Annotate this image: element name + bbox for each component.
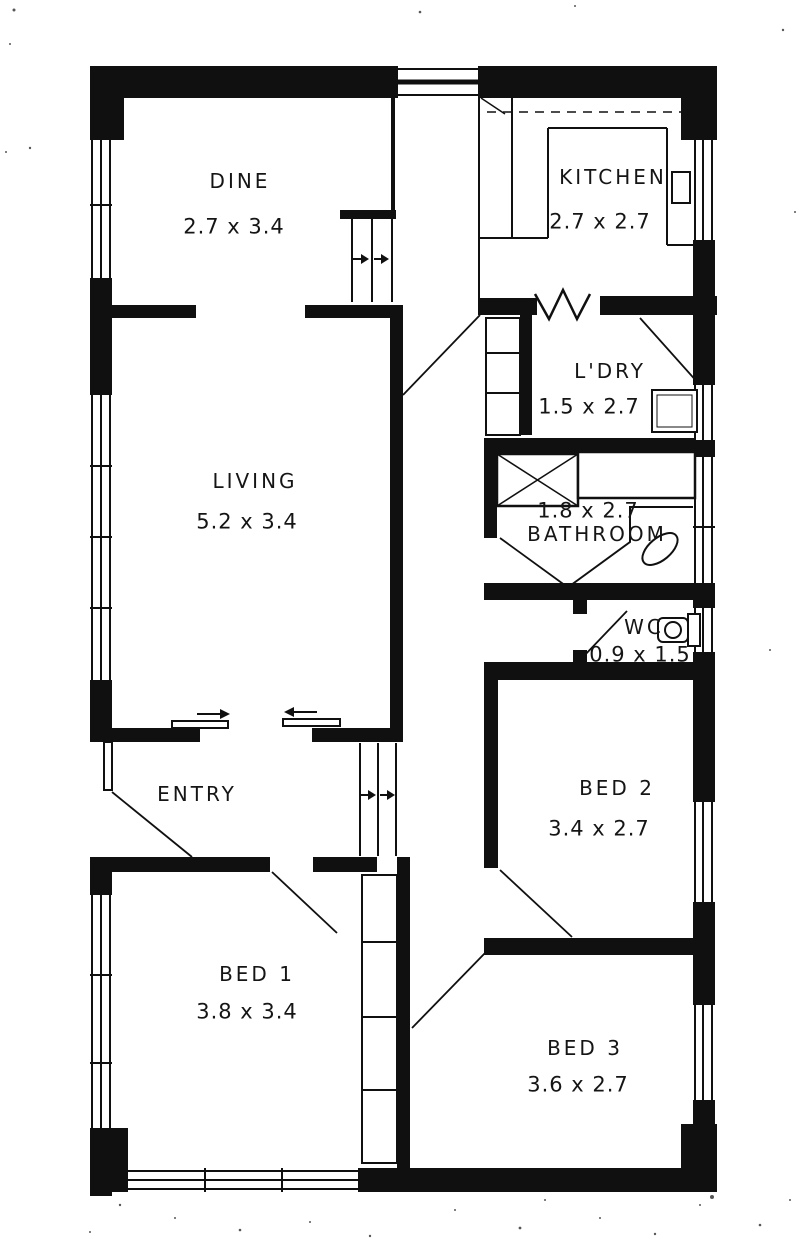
room-label-bed3: BED 3 [547, 1038, 623, 1058]
room-dims-dine: 2.7 x 3.4 [183, 217, 285, 238]
kitchen-sink [672, 172, 690, 203]
hall-door-swing [403, 315, 480, 395]
room-label-living: LIVING [212, 471, 297, 491]
wardrobe [362, 875, 397, 1163]
slider-arrow-icon [368, 790, 376, 800]
room-label-bathroom: BATHROOM [527, 524, 667, 544]
toilet [658, 614, 700, 646]
laundry-trough [652, 390, 697, 432]
room-dims-wc: 0.9 x 1.5 [589, 645, 691, 666]
living-sliding-doors [172, 707, 340, 728]
room-label-bed2: BED 2 [579, 778, 655, 798]
room-label-entry: ENTRY [157, 784, 237, 804]
floor-plan: DINE 2.7 x 3.4 KITCHEN 2.7 x 2.7 L'DRY 1… [0, 0, 800, 1243]
room-label-kitchen: KITCHEN [559, 167, 667, 187]
slider-arrow-icon [361, 254, 369, 264]
front-door-leaf [104, 742, 112, 790]
bed3-door-swing [412, 952, 486, 1028]
room-dims-laundry: 1.5 x 2.7 [538, 397, 640, 418]
hall-cavity-slider [360, 743, 396, 856]
bed2-door-swing [500, 870, 572, 937]
room-label-bed1: BED 1 [219, 964, 295, 984]
linen-cupboard [486, 318, 520, 435]
zigzag-door-symbol [535, 290, 590, 319]
room-label-dine: DINE [210, 171, 271, 191]
room-dims-bed3: 3.6 x 2.7 [527, 1075, 629, 1096]
slider-arrow-icon [387, 790, 395, 800]
slider-arrow-icon [284, 707, 294, 717]
room-label-wc: WC [624, 617, 664, 637]
slider-arrow-icon [220, 709, 230, 719]
bed1-door-swing [272, 872, 337, 933]
floor-plan-drawing [0, 0, 800, 1243]
room-dims-kitchen: 2.7 x 2.7 [549, 212, 651, 233]
bathtub [578, 452, 695, 498]
kitchen-bench [479, 98, 693, 298]
room-dims-bed1: 3.8 x 3.4 [196, 1002, 298, 1023]
room-label-laundry: L'DRY [574, 361, 646, 381]
room-dims-bed2: 3.4 x 2.7 [548, 819, 650, 840]
laundry-door-swing [640, 318, 699, 384]
room-dims-living: 5.2 x 3.4 [196, 512, 298, 533]
room-dims-bathroom: 1.8 x 2.7 [537, 501, 639, 522]
slider-arrow-icon [381, 254, 389, 264]
